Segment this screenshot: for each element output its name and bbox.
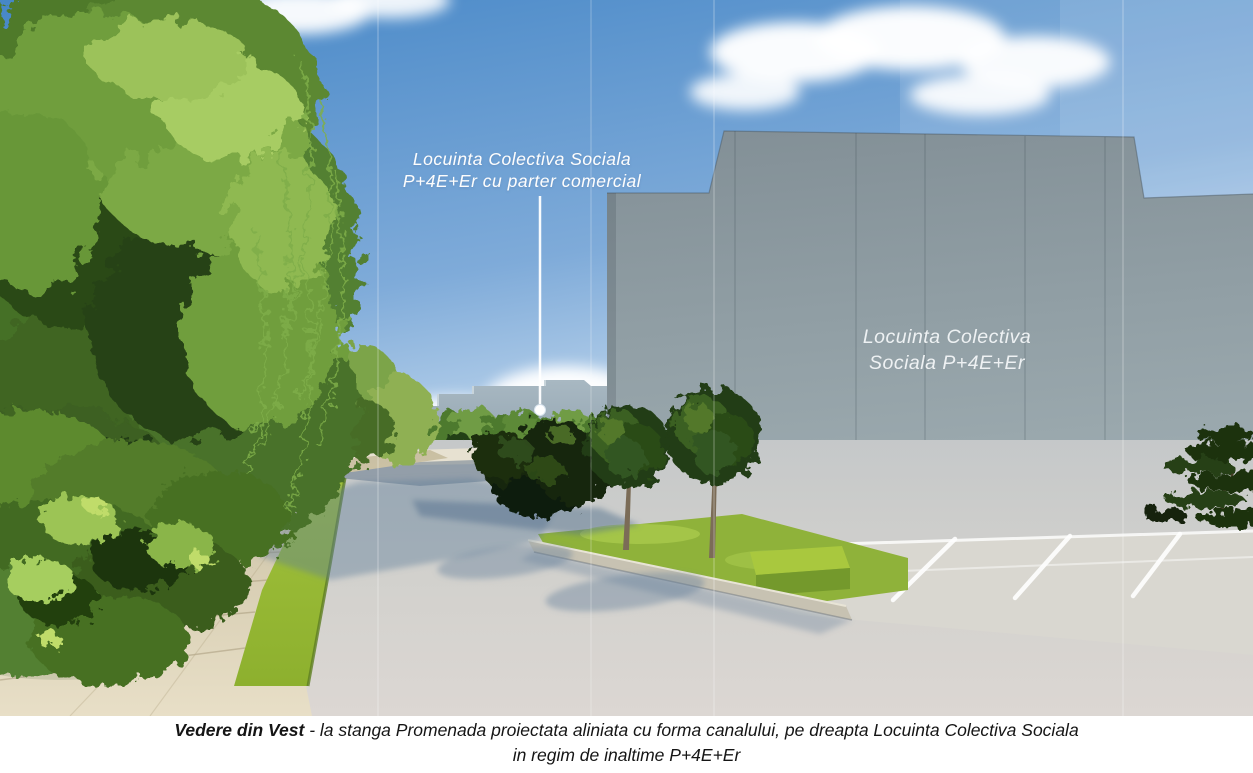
caption-line-2: in regim de inaltime P+4E+Er xyxy=(0,743,1253,768)
sky-annotation-line2: P+4E+Er cu parter comercial xyxy=(403,171,642,191)
caption-title: Vedere din Vest xyxy=(174,720,304,740)
building-label-line1: Locuinta Colectiva xyxy=(863,326,1031,348)
caption-line-1: Vedere din Vest - la stanga Promenada pr… xyxy=(0,718,1253,743)
figure-caption: Vedere din Vest - la stanga Promenada pr… xyxy=(0,718,1253,768)
scene-svg: Locuinta Colectiva Sociala P+4E+Er cu pa… xyxy=(0,0,1253,716)
annotation-marker-dot xyxy=(535,405,546,416)
building-label-line2: Sociala P+4E+Er xyxy=(869,352,1026,374)
caption-body: - la stanga Promenada proiectata aliniat… xyxy=(304,720,1078,740)
architectural-rendering-figure: Locuinta Colectiva Sociala P+4E+Er cu pa… xyxy=(0,0,1253,773)
sky-annotation-line1: Locuinta Colectiva Sociala xyxy=(413,149,631,169)
